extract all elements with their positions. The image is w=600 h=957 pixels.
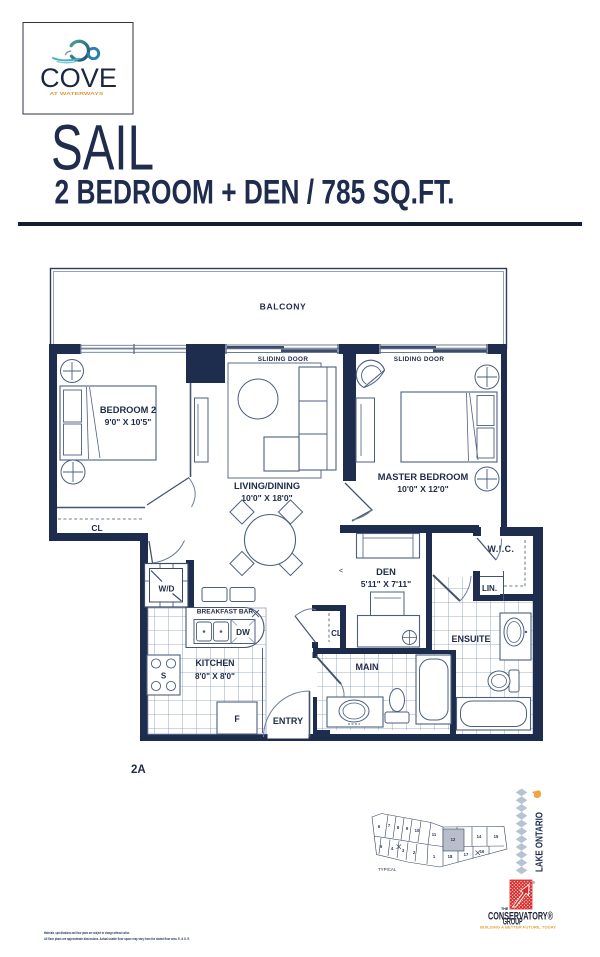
- svg-text:Materials, specifications and: Materials, specifications and floor plan…: [44, 930, 130, 935]
- svg-text:BREAKFAST BAR: BREAKFAST BAR: [197, 609, 254, 616]
- svg-text:10'0" X 12'0": 10'0" X 12'0": [397, 484, 448, 494]
- svg-text:17: 17: [464, 852, 469, 857]
- svg-text:CL: CL: [91, 523, 102, 533]
- svg-text:14: 14: [477, 834, 482, 839]
- svg-text:MAIN: MAIN: [356, 662, 379, 672]
- svg-text:3: 3: [402, 848, 405, 853]
- svg-text:DW: DW: [236, 628, 250, 637]
- svg-text:ENSUITE: ENSUITE: [451, 634, 490, 644]
- svg-text:KITCHEN: KITCHEN: [195, 658, 234, 668]
- svg-text:10: 10: [415, 828, 420, 833]
- svg-text:10'0" X 18'0": 10'0" X 18'0": [241, 493, 292, 503]
- svg-text:8'0" X 8'0": 8'0" X 8'0": [195, 672, 235, 681]
- svg-text:SLIDING DOOR: SLIDING DOOR: [258, 356, 309, 363]
- svg-text:COVE: COVE: [40, 63, 117, 93]
- svg-text:DEN: DEN: [376, 567, 396, 577]
- svg-text:SLIDING DOOR: SLIDING DOOR: [394, 356, 445, 363]
- svg-text:ENTRY: ENTRY: [273, 716, 303, 726]
- svg-text:®: ®: [533, 881, 536, 885]
- svg-text:6: 6: [378, 824, 381, 829]
- svg-text:S: S: [161, 672, 167, 681]
- svg-text:AT WATERWAYS: AT WATERWAYS: [49, 91, 103, 96]
- svg-text:11: 11: [432, 832, 437, 837]
- svg-text:4: 4: [391, 846, 394, 851]
- svg-text:LIVING/DINING: LIVING/DINING: [234, 481, 300, 491]
- svg-text:2A: 2A: [131, 764, 146, 776]
- svg-text:8: 8: [397, 825, 400, 830]
- svg-text:CL: CL: [331, 629, 342, 638]
- svg-text:9'0" X 10'5": 9'0" X 10'5": [105, 417, 152, 427]
- svg-text:W/D: W/D: [159, 585, 175, 594]
- svg-text:<: <: [339, 568, 343, 575]
- svg-text:All floor plans are approximat: All floor plans are approximate dimensio…: [44, 936, 190, 941]
- svg-text:BALCONY: BALCONY: [260, 302, 307, 312]
- svg-text:2: 2: [413, 850, 416, 855]
- svg-text:16: 16: [480, 849, 485, 854]
- svg-text:TYPICAL: TYPICAL: [378, 867, 397, 872]
- svg-text:LAKE ONTARIO: LAKE ONTARIO: [534, 812, 546, 872]
- svg-text:7: 7: [388, 823, 391, 828]
- svg-text:LIN.: LIN.: [482, 584, 497, 593]
- svg-text:18: 18: [448, 854, 453, 859]
- svg-text:MASTER BEDROOM: MASTER BEDROOM: [378, 472, 469, 482]
- svg-text:BEDROOM 2: BEDROOM 2: [100, 405, 156, 415]
- svg-text:1: 1: [433, 854, 436, 859]
- svg-text:15: 15: [494, 834, 499, 839]
- svg-text:12: 12: [451, 837, 456, 842]
- svg-text:F: F: [234, 714, 240, 724]
- svg-text:2 BEDROOM + DEN / 785 SQ.FT.: 2 BEDROOM + DEN / 785 SQ.FT.: [55, 174, 455, 212]
- svg-text:5: 5: [380, 844, 383, 849]
- svg-text:5'11" X 7'11": 5'11" X 7'11": [361, 579, 411, 589]
- svg-text:9: 9: [406, 826, 409, 831]
- svg-text:BUILDING A BETTER FUTURE, TODA: BUILDING A BETTER FUTURE, TODAY: [480, 926, 557, 930]
